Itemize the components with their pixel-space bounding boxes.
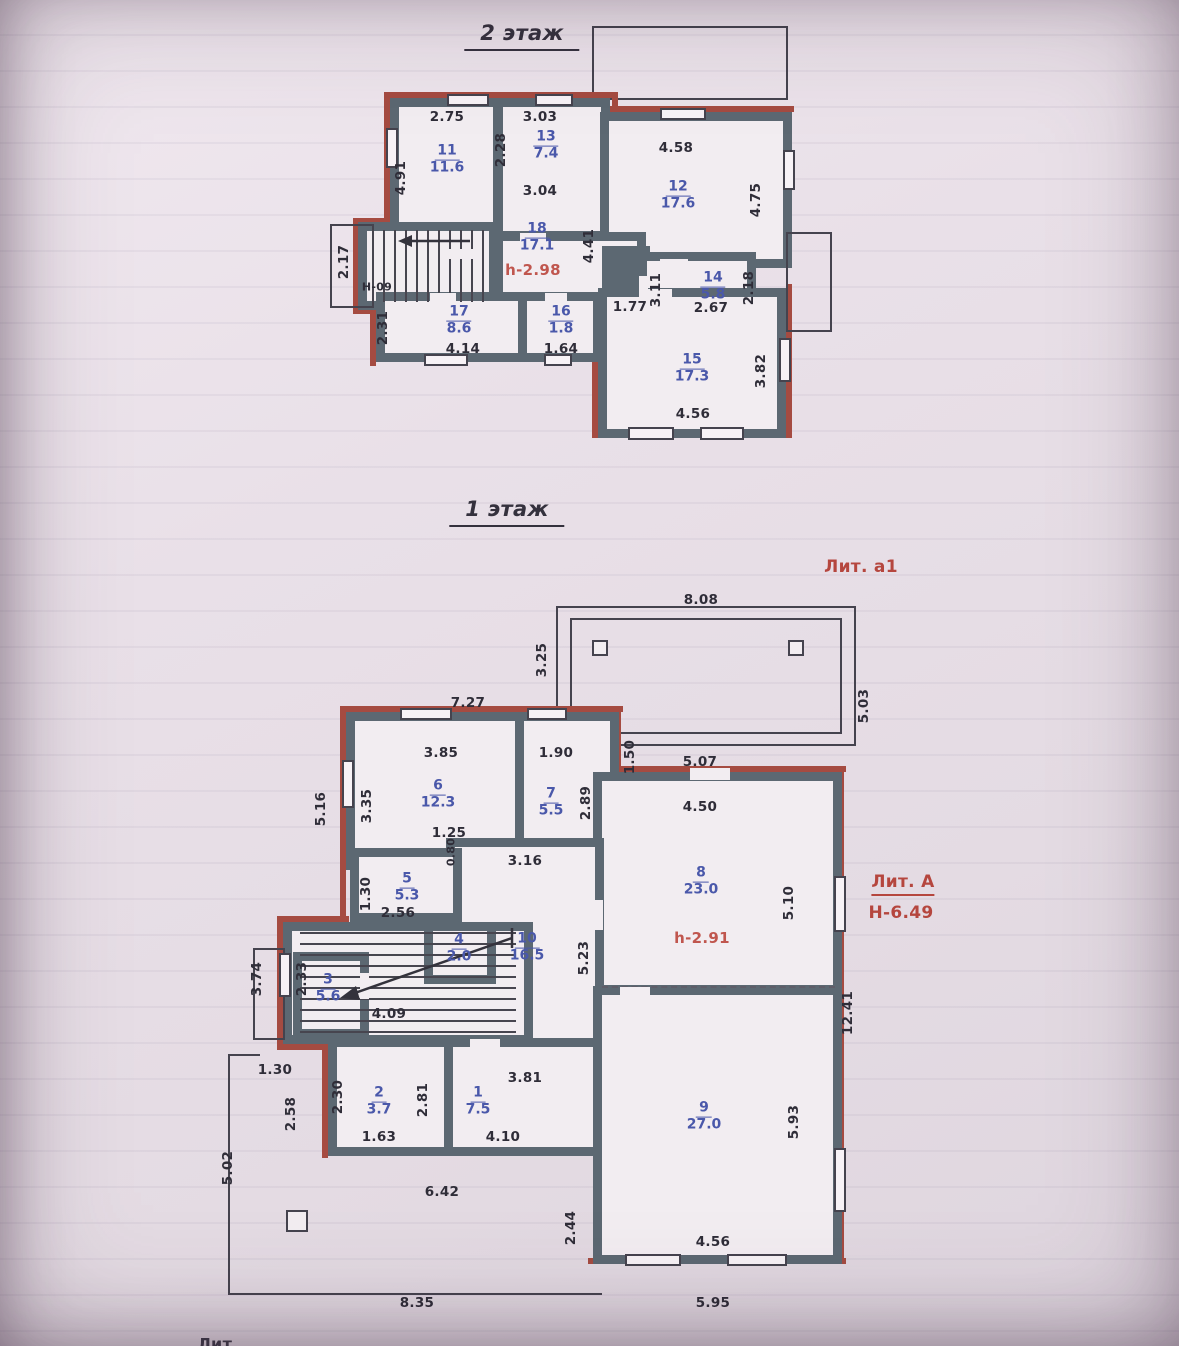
dim-label: 1.77 xyxy=(613,299,648,315)
dim-label: 4.09 xyxy=(372,1006,407,1022)
room-label-1: 17.5 xyxy=(466,1086,491,1119)
room-label-15: 1517.3 xyxy=(675,353,710,386)
dim-label: 3.25 xyxy=(534,643,550,678)
dim-label: 7.27 xyxy=(451,695,486,711)
dim-label: 2.58 xyxy=(283,1097,299,1132)
window xyxy=(527,708,567,720)
window xyxy=(779,338,791,382)
room-label-18: 1817.1 xyxy=(520,222,555,255)
dim-label: 2.75 xyxy=(430,109,465,125)
dim-label: 2.33 xyxy=(294,962,310,997)
window xyxy=(342,760,354,808)
floor2-height-note: h-2.98 xyxy=(505,261,561,279)
dim-label: 3.74 xyxy=(249,962,265,997)
dim-label: 6.42 xyxy=(425,1184,460,1200)
room-label-12: 1217.6 xyxy=(661,180,696,213)
dim-label: 4.14 xyxy=(446,341,481,357)
dim-label: 3.82 xyxy=(753,354,769,389)
dim-label: Н-09 xyxy=(362,281,392,294)
room-label-16: 161.8 xyxy=(548,305,573,338)
porch-post xyxy=(592,640,608,656)
cutoff-corner-note: Лит. xyxy=(197,1335,238,1346)
room-label-11: 1111.6 xyxy=(430,144,465,177)
dim-label: 3.03 xyxy=(523,109,558,125)
dim-label: 1.90 xyxy=(539,745,574,761)
room-label-6: 612.3 xyxy=(421,779,456,812)
dim-label: 2.30 xyxy=(330,1080,346,1115)
window xyxy=(447,94,489,106)
room-label-7: 75.5 xyxy=(539,787,564,820)
dim-label: 1.50 xyxy=(622,740,638,775)
window xyxy=(834,1148,846,1212)
window xyxy=(628,427,674,440)
dim-label: 3.16 xyxy=(508,853,543,869)
dim-label: 2.31 xyxy=(375,311,391,346)
dim-label: 5.10 xyxy=(781,886,797,921)
dim-label: 4.56 xyxy=(676,406,711,422)
room-label-14: 145.8 xyxy=(700,271,725,304)
floor2-title: 2 этаж xyxy=(464,21,579,51)
yard-post xyxy=(286,1210,308,1232)
room-label-5: 55.3 xyxy=(395,872,420,905)
dim-label: 2.17 xyxy=(336,245,352,280)
dim-label: 1.30 xyxy=(258,1062,293,1078)
dim-label: 2.28 xyxy=(493,133,509,168)
dim-label: 2.56 xyxy=(381,905,416,921)
floor1-title: 1 этаж xyxy=(449,497,564,527)
dim-label: 4.50 xyxy=(683,799,718,815)
floor2-bay-right xyxy=(786,232,832,332)
dim-label: 3.11 xyxy=(648,273,664,308)
dim-label: 12.41 xyxy=(840,991,856,1035)
dim-label: 4.58 xyxy=(659,140,694,156)
dim-label: 1.63 xyxy=(362,1129,397,1145)
dim-label: 3.35 xyxy=(359,789,375,824)
dim-label: 5.23 xyxy=(576,941,592,976)
window xyxy=(400,708,452,720)
floor2-porch-outline xyxy=(592,26,788,100)
dim-label: 2.44 xyxy=(563,1211,579,1246)
floorplan-photo-page: 2 этаж h-2.98 1 этаж Лит. а1 Лит. А Н-6.… xyxy=(0,0,1179,1346)
room-label-4: 42.0 xyxy=(447,933,472,966)
window xyxy=(834,876,846,932)
room-label-9: 927.0 xyxy=(687,1101,722,1134)
window xyxy=(625,1254,681,1266)
building-height-label: Н-6.49 xyxy=(868,903,933,923)
dim-label: 1.30 xyxy=(358,877,374,912)
dim-label: 5.03 xyxy=(856,689,872,724)
room-label-3: 35.6 xyxy=(316,973,341,1006)
porch-liter-label: Лит. а1 xyxy=(824,557,898,577)
window xyxy=(535,94,573,106)
room-label-17: 178.6 xyxy=(446,305,471,338)
room-label-2: 23.7 xyxy=(367,1086,392,1119)
dim-label: 2.18 xyxy=(741,271,757,306)
dim-label: 5.16 xyxy=(313,792,329,827)
room-label-13: 137.4 xyxy=(533,130,558,163)
floor1-height-note: h-2.91 xyxy=(674,929,730,947)
dim-label: 3.85 xyxy=(424,745,459,761)
dim-label: 5.93 xyxy=(786,1105,802,1140)
window xyxy=(660,108,706,120)
building-liter-label: Лит. А xyxy=(871,872,934,896)
dim-label: 5.02 xyxy=(220,1151,236,1186)
dim-label: 1.64 xyxy=(544,341,579,357)
dim-label: 0.80 xyxy=(445,838,458,866)
dim-label: 2.81 xyxy=(415,1083,431,1118)
dim-label: 8.35 xyxy=(400,1295,435,1311)
dim-label: 5.95 xyxy=(696,1295,731,1311)
window xyxy=(727,1254,787,1266)
dim-label: 4.75 xyxy=(748,183,764,218)
porch-post xyxy=(788,640,804,656)
dim-label: 4.91 xyxy=(393,161,409,196)
dim-label: 4.56 xyxy=(696,1234,731,1250)
window xyxy=(279,953,291,997)
dim-label: 3.81 xyxy=(508,1070,543,1086)
room-label-10: 1016.5 xyxy=(510,932,545,965)
dim-label: 3.04 xyxy=(523,183,558,199)
dim-label: 8.08 xyxy=(684,592,719,608)
window xyxy=(700,427,744,440)
dim-label: 5.07 xyxy=(683,754,718,770)
room-label-8: 823.0 xyxy=(684,866,719,899)
dim-label: 4.10 xyxy=(486,1129,521,1145)
window xyxy=(783,150,795,190)
dim-label: 2.89 xyxy=(578,786,594,821)
dim-label: 4.41 xyxy=(581,229,597,264)
